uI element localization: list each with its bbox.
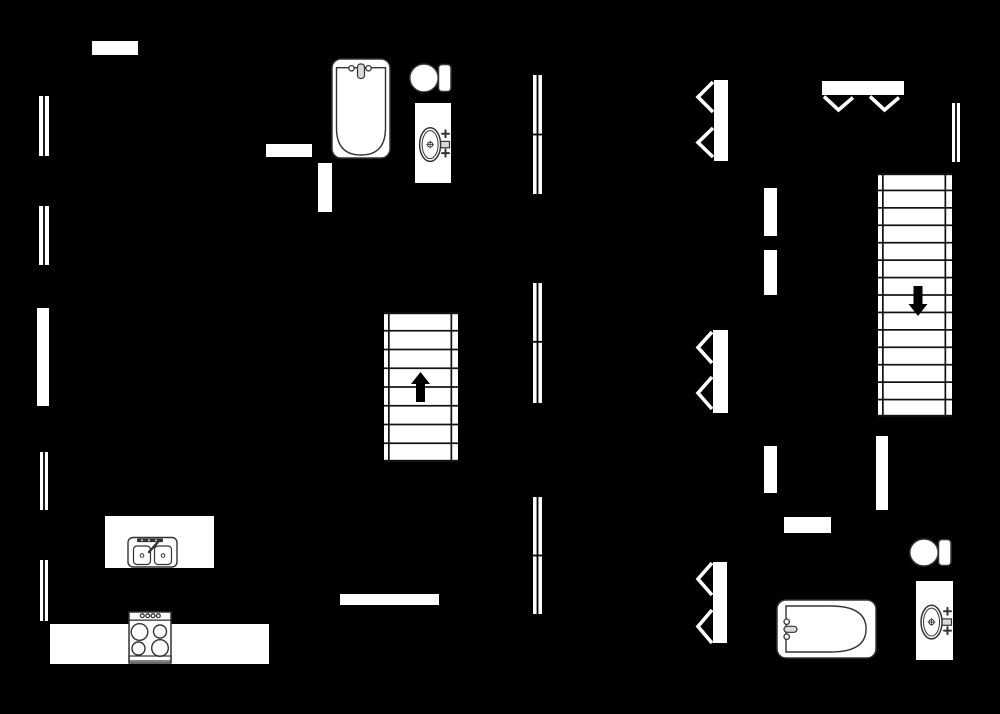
toilet-lower xyxy=(910,539,951,566)
wall-hall-upper-a xyxy=(764,188,777,236)
window-left-4 xyxy=(40,560,48,621)
stairs-down xyxy=(878,173,952,417)
wall-hall-lower xyxy=(764,446,777,493)
wall-hall-upper-b xyxy=(764,250,777,295)
window-middle-3 xyxy=(533,497,542,614)
wall-top-left xyxy=(92,41,138,55)
floor-plan-canvas xyxy=(0,0,1000,714)
kitchen-island xyxy=(105,516,214,568)
window-left-2 xyxy=(39,206,49,265)
window-left-3 xyxy=(40,452,48,510)
wall-kitchen-vertical xyxy=(318,163,332,212)
wall-stair-lower xyxy=(876,436,888,510)
wall-kitchen-horizontal xyxy=(266,144,312,157)
window-middle-1 xyxy=(533,75,542,194)
wall-bath-lower xyxy=(784,517,831,533)
window-right xyxy=(952,103,960,162)
bathtub-lower xyxy=(777,600,876,658)
floor-plan xyxy=(0,0,1000,714)
wall-bottom-middle xyxy=(340,594,439,605)
window-middle-2 xyxy=(533,283,542,403)
stove xyxy=(129,612,171,663)
window-left-1 xyxy=(39,96,49,156)
stairs-up xyxy=(384,312,458,462)
toilet-upper xyxy=(410,64,451,92)
sink-vanity-upper xyxy=(415,103,451,183)
bathtub-upper xyxy=(332,59,390,158)
wall-left-middle xyxy=(37,308,49,406)
sink-vanity-lower xyxy=(916,581,953,660)
